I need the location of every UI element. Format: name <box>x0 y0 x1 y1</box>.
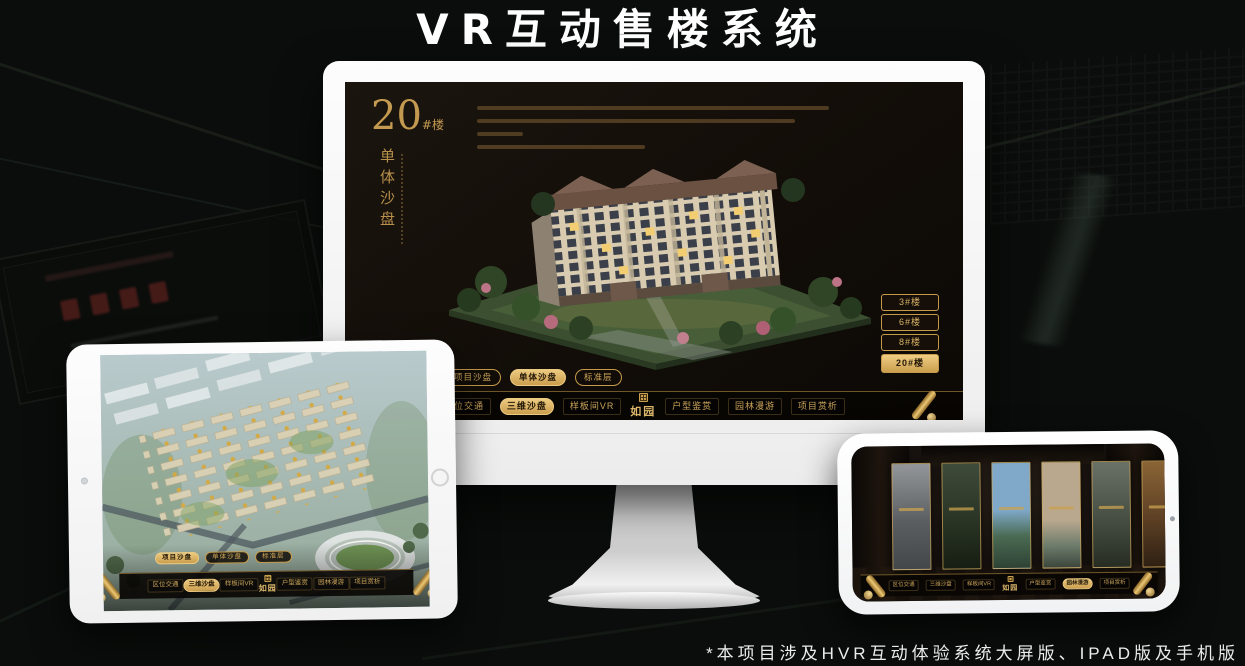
ipad-screen: 项目沙盘 单体沙盘 标准层 区位交通 三维沙盘 样板间VR 如园 户型鉴赏 园林… <box>100 351 430 612</box>
scroll-menu-icon[interactable] <box>1130 570 1156 596</box>
scroll-menu-icon[interactable] <box>911 388 937 420</box>
vr-gallery <box>891 460 1165 570</box>
building-unit: #楼 <box>422 118 444 132</box>
nav-location-traffic[interactable]: 区位交通 <box>147 579 183 592</box>
tab-standard-floor[interactable]: 标准层 <box>575 369 622 386</box>
phone-navbar: 区位交通 三维沙盘 样板间VR 如园 户型鉴赏 园林漫游 项目赏析 <box>861 571 1158 596</box>
phone-camera-icon <box>1170 516 1175 521</box>
background-buildings <box>990 47 1245 225</box>
brand-logo[interactable]: 如园 <box>259 575 277 594</box>
ipad-navbar: 区位交通 三维沙盘 样板间VR 如园 户型鉴赏 园林漫游 项目赏析 <box>119 569 413 599</box>
nav-3d-sandbox[interactable]: 三维沙盘 <box>184 579 220 592</box>
nav-showroom-vr[interactable]: 样板间VR <box>963 579 995 591</box>
tab-single-sandbox[interactable]: 单体沙盘 <box>205 551 249 564</box>
seal-icon <box>1007 576 1013 582</box>
gallery-card-4[interactable] <box>1041 461 1081 568</box>
building-3d-model <box>431 132 883 384</box>
tab-standard-floor[interactable]: 标准层 <box>255 550 292 563</box>
nav-location-traffic[interactable]: 区位交通 <box>889 580 919 592</box>
seal-icon <box>264 575 271 582</box>
headline-subtitle-en-decor <box>401 152 403 244</box>
background-river <box>1010 166 1128 353</box>
nav-floorplan-gallery[interactable]: 户型鉴赏 <box>1025 578 1055 590</box>
tab-single-sandbox[interactable]: 单体沙盘 <box>510 369 566 386</box>
seal-icon <box>639 393 648 402</box>
nav-garden-roam[interactable]: 园林漫游 <box>313 577 349 590</box>
nav-showroom-vr[interactable]: 样板间VR <box>563 398 622 415</box>
nav-project-review[interactable]: 项目赏析 <box>1100 577 1130 589</box>
ipad-view-tabs: 项目沙盘 单体沙盘 标准层 <box>155 550 292 564</box>
headline-subtitle-vertical: 单体沙盘 <box>377 148 398 232</box>
monitor-base <box>548 592 760 609</box>
nav-project-review[interactable]: 项目赏析 <box>349 577 385 590</box>
building-number: 20 <box>371 93 422 139</box>
footnote: *本项目涉及HVR互动体验系统大屏版、IPAD版及手机版 <box>706 639 1239 664</box>
scroll-menu-icon[interactable] <box>100 570 121 602</box>
page-title: VR互动售楼系统 <box>0 2 1245 58</box>
building-headline: 20#楼 <box>371 96 444 136</box>
gallery-card-2[interactable] <box>941 462 981 569</box>
brand-logo[interactable]: 如园 <box>1002 576 1018 593</box>
phone-device: 区位交通 三维沙盘 样板间VR 如园 户型鉴赏 园林漫游 项目赏析 <box>837 430 1180 615</box>
ipad-home-button[interactable] <box>431 468 449 486</box>
brand-logo[interactable]: 如园 <box>630 393 656 419</box>
building-selector: 3#楼 6#楼 8#楼 20#楼 <box>881 294 939 373</box>
nav-floorplan-gallery[interactable]: 户型鉴赏 <box>665 398 719 415</box>
nav-3d-sandbox[interactable]: 三维沙盘 <box>926 579 956 591</box>
monitor-view-tabs: 项目沙盘 单体沙盘 标准层 <box>445 369 622 386</box>
ipad-device: 项目沙盘 单体沙盘 标准层 区位交通 三维沙盘 样板间VR 如园 户型鉴赏 园林… <box>66 339 458 623</box>
phone-screen: 区位交通 三维沙盘 样板间VR 如园 户型鉴赏 园林漫游 项目赏析 <box>851 443 1166 601</box>
scroll-menu-icon[interactable] <box>863 573 889 599</box>
nav-garden-roam[interactable]: 园林漫游 <box>1062 578 1092 590</box>
nav-floorplan-gallery[interactable]: 户型鉴赏 <box>277 578 313 591</box>
gallery-card-6[interactable] <box>1141 460 1165 567</box>
gallery-card-1[interactable] <box>891 463 931 570</box>
nav-garden-roam[interactable]: 园林漫游 <box>728 398 782 415</box>
building-button-3[interactable]: 3#楼 <box>881 294 939 311</box>
ipad-camera-icon <box>81 477 88 484</box>
nav-3d-sandbox[interactable]: 三维沙盘 <box>500 398 554 415</box>
nav-project-review[interactable]: 项目赏析 <box>791 398 845 415</box>
building-button-6[interactable]: 6#楼 <box>881 314 939 331</box>
tab-project-sandbox[interactable]: 项目沙盘 <box>155 551 199 564</box>
scroll-menu-icon[interactable] <box>411 566 430 598</box>
gallery-card-3[interactable] <box>991 462 1031 569</box>
building-button-8[interactable]: 8#楼 <box>881 334 939 351</box>
gallery-card-5[interactable] <box>1091 461 1131 568</box>
nav-showroom-vr[interactable]: 样板间VR <box>220 578 259 591</box>
building-button-20[interactable]: 20#楼 <box>881 354 939 373</box>
promo-canvas: VR互动售楼系统 20#楼 单体沙盘 <box>0 0 1245 666</box>
monitor-stand <box>544 483 764 601</box>
